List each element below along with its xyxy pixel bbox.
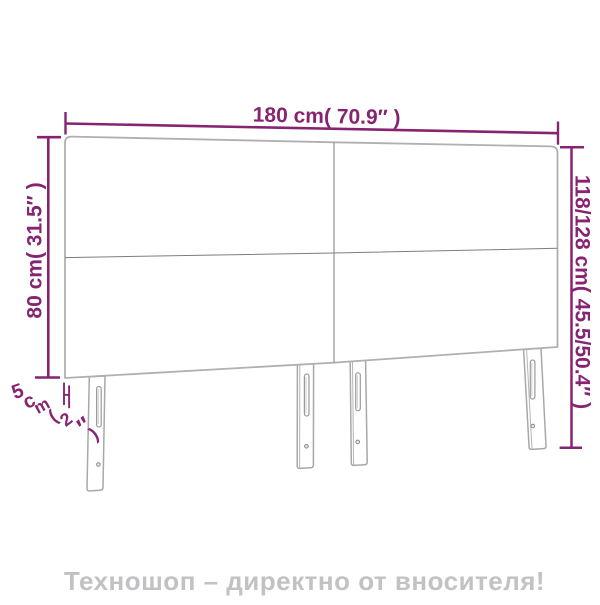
svg-text:180 cm( 70.9″ ): 180 cm( 70.9″ ) — [253, 104, 401, 130]
svg-text:Техношоп – директно от вносите: Техношоп – директно от вносителя! — [64, 566, 545, 596]
svg-text:118/128 cm( 45.5/50.4″ ): 118/128 cm( 45.5/50.4″ ) — [571, 175, 594, 409]
svg-text:80 cm( 31.5″ ): 80 cm( 31.5″ ) — [24, 182, 47, 318]
